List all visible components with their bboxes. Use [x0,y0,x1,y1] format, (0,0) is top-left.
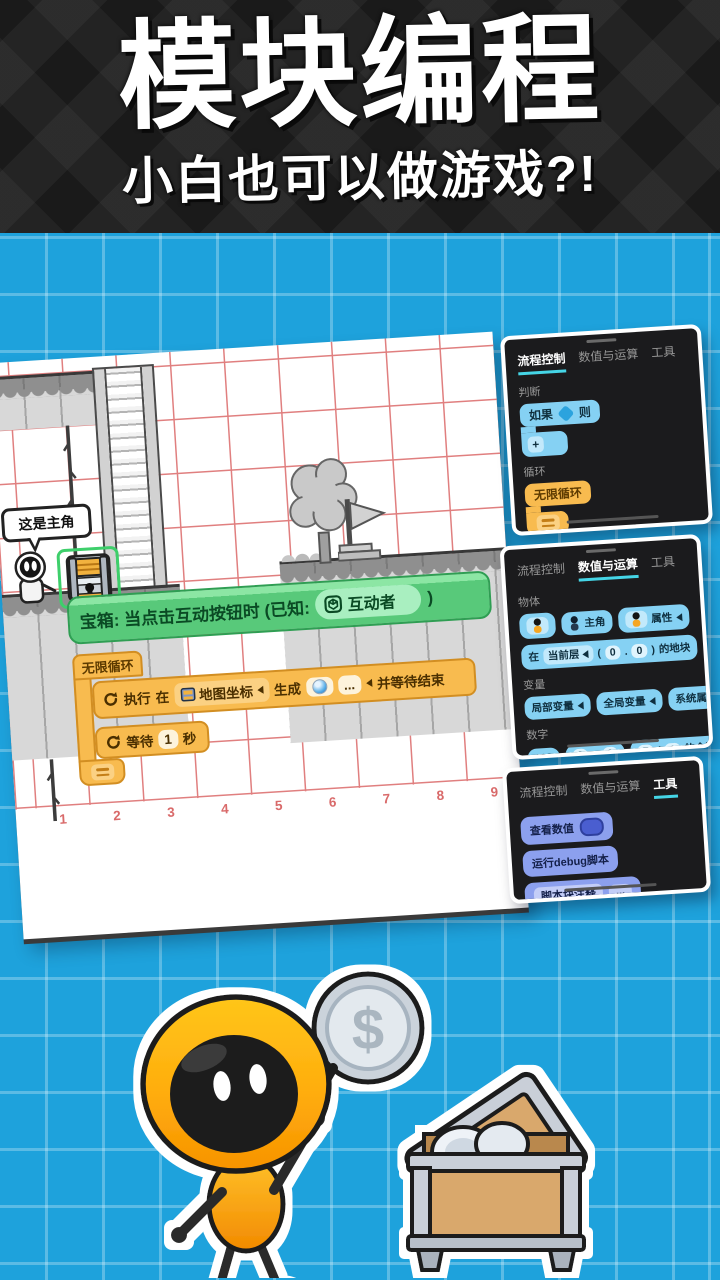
palette-tabs: 流程控制 数值与运算 工具 [507,768,702,810]
cmd-word: 在 [155,686,170,707]
mascot-illustration: $ [118,946,596,1278]
player-sprite[interactable] [5,550,59,611]
tab-tools[interactable]: 工具 [653,774,678,798]
tile-at-block[interactable]: 在 当前层 ( 0 . 0 ) 的地块 [521,634,698,670]
add-branch-button[interactable]: + [527,436,544,453]
palette-panel-flow: 流程控制 数值与运算 工具 判断 如果 则 + 循环 无限循环 [500,324,713,536]
dropdown-arrow-icon [582,650,588,658]
treasure-chest-art [403,1071,589,1270]
chest-icon [180,687,196,702]
tab-tools[interactable]: 工具 [651,343,676,367]
wait-value-field[interactable]: 1 [158,729,179,749]
collapse-handle-icon[interactable] [90,763,114,780]
header-banner: 模块编程 小白也可以做游戏?! [0,0,720,233]
map-coord-dropdown[interactable]: 地图坐标 [173,677,269,707]
event-block-text: 宝箱: 当点击互动按钮时 (已知: [79,593,311,632]
tab-flow-control[interactable]: 流程控制 [517,559,566,585]
dollar-sign: $ [352,997,384,1062]
cmd-word: 执行 [123,687,151,709]
page-title: 模块编程 [0,2,720,147]
global-var-block[interactable]: 全局变量 [596,689,663,716]
dropdown-arrow-icon [676,613,682,621]
entity-slot[interactable] [305,676,333,697]
refresh-icon [102,691,119,708]
speech-bubble-text: 这是主角 [18,511,75,534]
palette-tabs: 流程控制 数值与运算 工具 [504,546,699,588]
refresh-icon [105,734,122,751]
object-self-block[interactable] [519,612,556,639]
tab-tools[interactable]: 工具 [650,553,675,577]
local-var-block[interactable]: 局部变量 [524,693,591,720]
y-field[interactable]: 0 [631,643,648,658]
interactor-pill[interactable]: 互动者 [315,584,423,621]
ellipsis-slot[interactable]: ... [337,674,361,694]
forever-loop-block[interactable]: 无限循环 [72,650,143,680]
palette-panel-tools: 流程控制 数值与运算 工具 查看数值 运行debug脚本 脚本块注释 ... [502,756,711,904]
object-attr-block[interactable]: 属性 [618,604,690,633]
page-subtitle: 小白也可以做游戏?! [0,130,720,217]
cube-icon [324,595,343,614]
mascot-art: $ [143,974,422,1278]
hero-icon [568,616,581,632]
editor-canvas: 这是主角 宝箱: 当点击互动按钮时 ( [0,332,529,940]
mascot-icon [630,612,643,628]
forever-loop-palette-block[interactable]: 无限循环 [524,474,698,536]
system-attr-block[interactable]: 系统属性 [668,684,714,711]
cmd-word: 并等待结束 [376,668,445,692]
layer-dropdown[interactable]: 当前层 [542,645,593,665]
watch-value-block[interactable]: 查看数值 [520,812,614,846]
modulo-block[interactable]: 7 / 3 的余数 [630,735,713,760]
speech-bubble: 这是主角 [1,503,93,543]
forever-loop-label: 无限循环 [81,654,134,676]
orb-icon [311,678,327,694]
mascot-icon [531,618,544,634]
palette-tabs: 流程控制 数值与运算 工具 [505,336,700,378]
interactor-label: 互动者 [347,588,396,615]
tab-values[interactable]: 数值与运算 [577,555,638,582]
map-coord-label: 地图坐标 [198,680,253,703]
object-hero-block[interactable]: 主角 [561,610,613,636]
platform-top-left [0,370,103,431]
flag-sprite [335,497,393,562]
tab-flow-control[interactable]: 流程控制 [517,349,566,375]
poster: 模块编程 小白也可以做游戏?! [0,0,720,1280]
dropdown-arrow-icon [577,701,583,709]
tab-values[interactable]: 数值与运算 [578,345,639,372]
tab-values[interactable]: 数值与运算 [580,777,641,804]
dropdown-arrow-icon [257,686,263,694]
dropdown-arrow-icon [366,679,372,687]
condition-slot[interactable] [557,405,574,422]
value-slot[interactable] [579,817,604,836]
cmd-word: 等待 [126,730,154,752]
if-block[interactable]: 如果 则 + [519,394,693,458]
number-literal-block[interactable]: 123 [527,747,560,760]
palette-panel-values: 流程控制 数值与运算 工具 物体 主角 属性 [499,534,713,760]
event-block-close: ) [427,588,434,608]
dropdown-arrow-icon [649,697,655,705]
wait-value: 1 [164,731,172,746]
cmd-word: 秒 [182,727,197,748]
run-debug-block[interactable]: 运行debug脚本 [522,845,618,877]
collapse-handle-icon [536,514,560,531]
ellipsis-label: ... [343,677,355,693]
x-field[interactable]: 0 [604,645,621,660]
cmd-word: 生成 [273,677,301,699]
tab-flow-control[interactable]: 流程控制 [519,781,568,807]
forever-loop-foot [78,758,126,787]
